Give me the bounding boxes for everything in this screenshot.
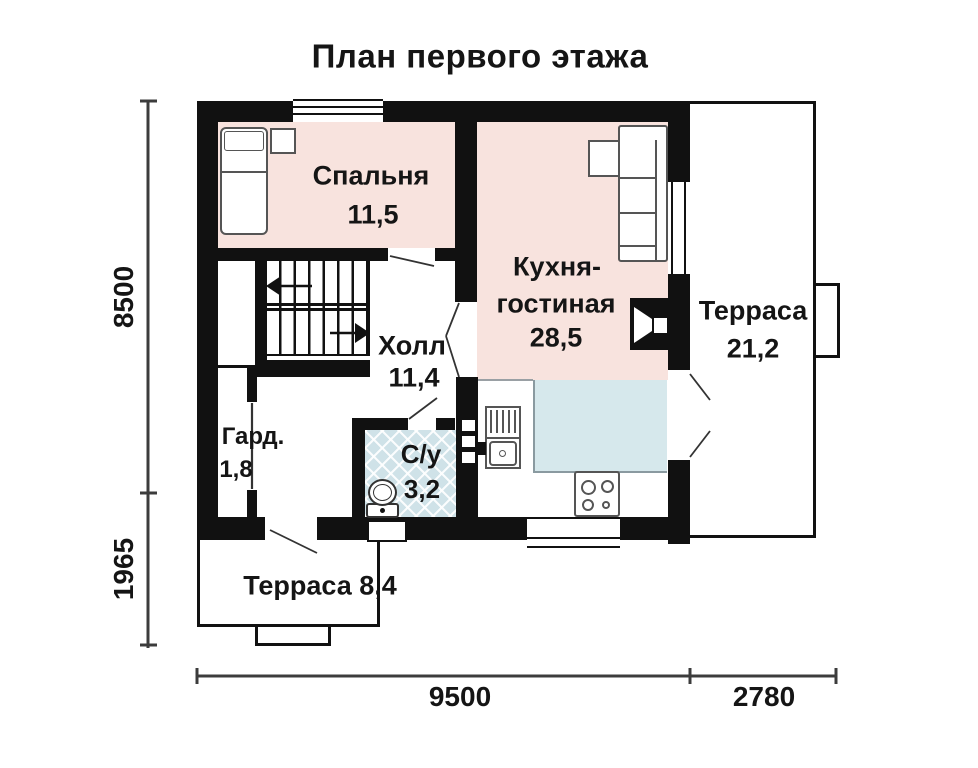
wall-left <box>197 101 218 540</box>
faucet-icon <box>476 442 486 455</box>
toilet-bowl-inner <box>373 484 392 501</box>
room-label-hall: Холл <box>378 333 446 360</box>
dimension-bottom-terrace: 2780 <box>733 683 795 711</box>
stove-burner <box>581 480 596 495</box>
sofa-cushion-line <box>620 177 656 179</box>
nightstand-icon <box>270 128 296 154</box>
stairs-arrow-up-icon <box>266 276 281 296</box>
room-area-hall: 11,4 <box>388 365 439 392</box>
sink-divider <box>485 437 521 439</box>
dimension-bottom-house: 9500 <box>429 683 491 711</box>
entrance-door-opening <box>265 517 317 540</box>
room-area-bedroom: 11,5 <box>347 202 398 229</box>
sofa-cushion-line <box>620 245 656 247</box>
wall-wardrobe-right-a <box>247 368 257 402</box>
wall-right <box>668 101 690 544</box>
sink-drain-line <box>508 410 510 433</box>
sink-drain-line <box>514 410 516 433</box>
sofa-chaise <box>588 140 620 177</box>
sink-drain <box>499 450 506 457</box>
terrace-front-outline-left <box>197 540 200 627</box>
room-label-bathroom: С/у <box>401 441 441 467</box>
wall-bedroom-kitchen <box>455 122 477 302</box>
pillow-icon <box>224 131 264 151</box>
toilet-button <box>380 508 385 513</box>
vent-shaft-icon <box>462 452 475 463</box>
sink-drain-line <box>496 410 498 433</box>
stairs-landing-line <box>267 303 370 306</box>
wall-bathroom-kitchen <box>456 377 478 520</box>
stove-burner <box>602 501 610 509</box>
page-title: План первого этажа <box>312 40 649 73</box>
sofa-back-line <box>655 140 657 262</box>
terrace-front-name: Терраса <box>243 571 352 601</box>
sink-drain-line <box>502 410 504 433</box>
counter-edge <box>477 379 533 381</box>
room-label-terrace-front: Терраса 8,4 <box>243 573 397 600</box>
kitchen-floor-zone <box>533 380 667 473</box>
terrace-window-bump <box>813 283 840 358</box>
room-area-kitchen-living: 28,5 <box>530 325 583 352</box>
stove-burner <box>582 499 594 511</box>
wall-top <box>197 101 690 122</box>
wall-stairs-left <box>255 258 267 368</box>
window-icon <box>367 520 407 542</box>
room-label-terrace-right: Терраса <box>699 298 808 325</box>
room-label-wardrobe: Гард. <box>222 425 285 449</box>
porch-step <box>255 624 331 646</box>
stairs-arrow-down-icon <box>355 323 370 343</box>
room-area-terrace-right: 21,2 <box>727 336 780 363</box>
fireplace-block <box>630 298 670 350</box>
terrace-door-opening <box>668 370 690 460</box>
vent-shaft-icon <box>462 436 475 447</box>
sink-drain-line <box>490 410 492 433</box>
stove-burner <box>601 480 614 493</box>
room-label-kitchen-living-1: Кухня- <box>513 254 601 281</box>
dimension-left-lower: 1965 <box>110 538 138 600</box>
wall-bathroom-left <box>352 430 365 517</box>
window-icon <box>293 97 383 122</box>
window-icon <box>527 519 620 548</box>
wall-stairs-bottom <box>255 360 370 377</box>
sofa-icon <box>618 125 668 262</box>
wall-bathroom-top-a <box>352 418 408 430</box>
wall-bathroom-top-b <box>436 418 455 430</box>
wall-wardrobe-right-b <box>247 490 257 517</box>
floor-plan: План первого этажа Спальня 11,5 Кухня- г… <box>0 0 978 768</box>
room-label-kitchen-living-2: гостиная <box>497 291 616 318</box>
stove-icon <box>574 471 620 517</box>
terrace-front-area: 8,4 <box>359 571 397 601</box>
vent-shaft-icon <box>462 420 475 431</box>
terrace-right-outline-bottom <box>690 535 816 538</box>
room-label-bedroom: Спальня <box>313 163 430 190</box>
dimension-left-upper: 8500 <box>110 266 138 328</box>
room-area-bathroom: 3,2 <box>404 476 440 502</box>
terrace-right-outline-top <box>690 101 816 104</box>
sofa-cushion-line <box>620 212 656 214</box>
window-icon <box>668 182 690 274</box>
stairs-landing-line <box>267 308 370 311</box>
wall-bedroom-bottom-b <box>435 248 455 261</box>
room-area-wardrobe: 1,8 <box>219 458 252 482</box>
bed-blanket-line <box>222 171 266 173</box>
